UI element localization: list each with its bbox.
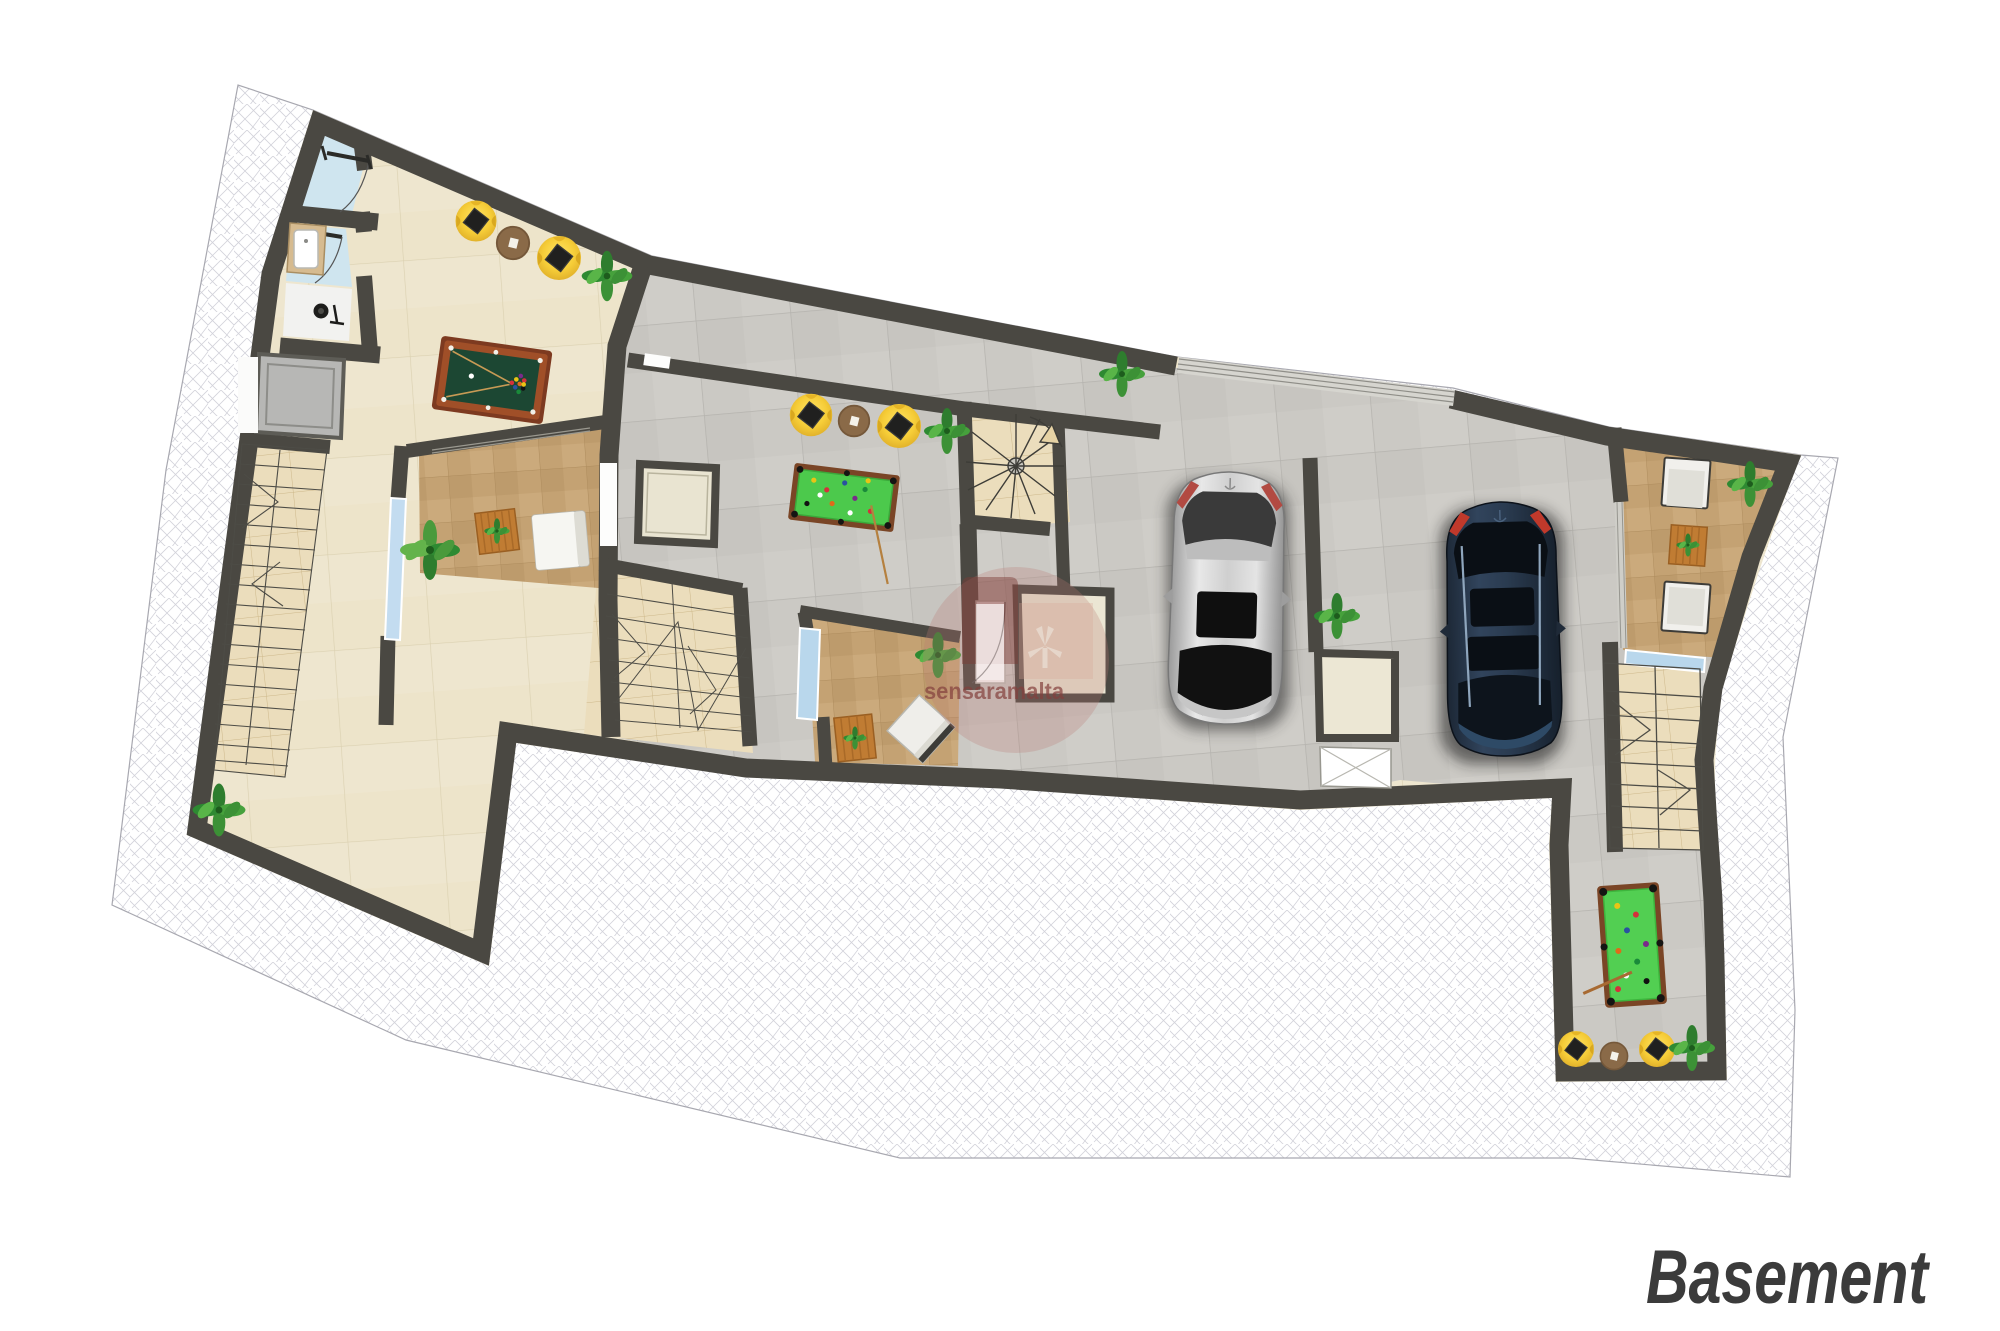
svg-text:Basement: Basement	[1646, 1235, 1930, 1320]
svg-text:sensaramalta: sensaramalta	[924, 678, 1064, 704]
